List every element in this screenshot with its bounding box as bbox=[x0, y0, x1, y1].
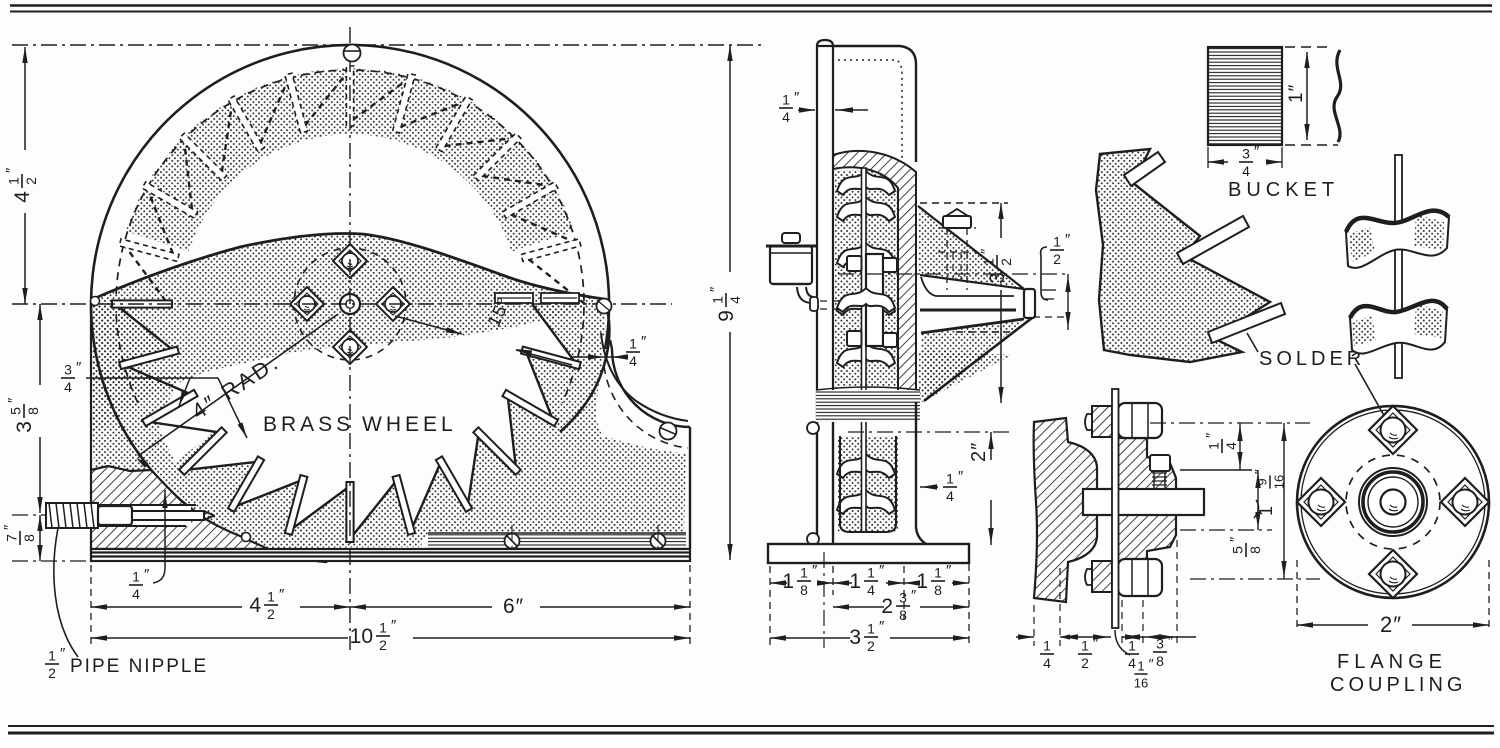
svg-text:″: ″ bbox=[946, 562, 952, 579]
svg-text:1: 1 bbox=[867, 621, 875, 637]
svg-text:″: ″ bbox=[707, 286, 724, 292]
svg-text:1: 1 bbox=[1043, 638, 1051, 654]
svg-text:8: 8 bbox=[25, 407, 41, 415]
svg-text:″: ″ bbox=[978, 248, 995, 254]
svg-text:2″: 2″ bbox=[1380, 612, 1402, 637]
svg-text:WHEEL: WHEEL bbox=[362, 413, 457, 436]
svg-text:″: ″ bbox=[5, 397, 22, 403]
svg-text:8: 8 bbox=[1247, 546, 1263, 554]
svg-text:4: 4 bbox=[727, 296, 743, 304]
svg-text:7: 7 bbox=[4, 534, 20, 542]
svg-text:4: 4 bbox=[782, 109, 790, 125]
svg-text:2: 2 bbox=[23, 177, 39, 185]
svg-text:2: 2 bbox=[881, 595, 893, 618]
svg-text:″: ″ bbox=[1203, 432, 1220, 438]
svg-text:3: 3 bbox=[849, 626, 861, 649]
svg-text:4: 4 bbox=[946, 488, 954, 504]
svg-text:″: ″ bbox=[879, 562, 885, 579]
svg-text:1: 1 bbox=[782, 570, 794, 593]
svg-text:8: 8 bbox=[21, 534, 37, 542]
svg-text:1: 1 bbox=[800, 565, 808, 581]
svg-text:2: 2 bbox=[1053, 251, 1061, 267]
svg-text:1: 1 bbox=[946, 471, 954, 487]
svg-text:BRASS: BRASS bbox=[263, 413, 354, 436]
svg-text:″: ″ bbox=[1093, 635, 1099, 652]
svg-text:1: 1 bbox=[782, 92, 790, 108]
svg-text:″: ″ bbox=[60, 645, 66, 662]
svg-text:SOLDER: SOLDER bbox=[1259, 348, 1365, 370]
svg-text:″: ″ bbox=[1065, 231, 1071, 248]
svg-text:4: 4 bbox=[1128, 655, 1136, 671]
svg-text:4: 4 bbox=[132, 586, 140, 602]
svg-text:″: ″ bbox=[1254, 143, 1260, 160]
svg-text:6″: 6″ bbox=[503, 595, 524, 618]
svg-text:″: ″ bbox=[641, 333, 647, 350]
svg-text:3: 3 bbox=[64, 362, 72, 378]
svg-text:2: 2 bbox=[867, 638, 875, 654]
svg-text:1: 1 bbox=[849, 570, 861, 593]
svg-text:3: 3 bbox=[1156, 636, 1164, 652]
svg-text:″: ″ bbox=[279, 586, 285, 603]
svg-text:1: 1 bbox=[6, 177, 22, 185]
svg-text:4: 4 bbox=[867, 582, 875, 598]
svg-text:″: ″ bbox=[3, 167, 20, 173]
svg-text:4: 4 bbox=[1223, 442, 1239, 450]
svg-text:9: 9 bbox=[1255, 478, 1270, 485]
svg-text:3: 3 bbox=[1242, 146, 1250, 162]
svg-text:8: 8 bbox=[800, 582, 808, 598]
svg-text:1: 1 bbox=[916, 570, 928, 593]
svg-text:1: 1 bbox=[867, 565, 875, 581]
svg-text:″: ″ bbox=[812, 562, 818, 579]
svg-text:8: 8 bbox=[899, 607, 907, 623]
svg-text:1: 1 bbox=[981, 258, 997, 266]
svg-text:1: 1 bbox=[379, 620, 387, 636]
svg-text:4: 4 bbox=[11, 191, 34, 203]
svg-text:4: 4 bbox=[64, 379, 72, 395]
svg-text:4: 4 bbox=[1043, 655, 1051, 671]
svg-text:BUCKET: BUCKET bbox=[1228, 179, 1339, 201]
svg-text:″: ″ bbox=[911, 587, 917, 604]
svg-text:16: 16 bbox=[1134, 675, 1148, 690]
svg-text:4: 4 bbox=[629, 353, 637, 369]
svg-text:2″: 2″ bbox=[968, 442, 990, 462]
svg-text:″: ″ bbox=[144, 566, 150, 583]
svg-text:4: 4 bbox=[249, 594, 261, 617]
svg-text:1: 1 bbox=[267, 589, 275, 605]
svg-text:3: 3 bbox=[13, 421, 36, 433]
svg-text:1: 1 bbox=[1081, 638, 1089, 654]
svg-text:3: 3 bbox=[986, 272, 1009, 284]
svg-text:8: 8 bbox=[934, 582, 942, 598]
svg-text:1: 1 bbox=[132, 569, 140, 585]
svg-text:2: 2 bbox=[998, 258, 1014, 266]
svg-text:9: 9 bbox=[715, 310, 738, 322]
svg-text:5: 5 bbox=[1230, 546, 1246, 554]
svg-text:″: ″ bbox=[1227, 536, 1244, 542]
svg-text:COUPLING: COUPLING bbox=[1330, 674, 1466, 696]
svg-text:3: 3 bbox=[899, 590, 907, 606]
svg-text:8: 8 bbox=[1156, 653, 1164, 669]
svg-text:1: 1 bbox=[710, 296, 726, 304]
svg-text:″: ″ bbox=[958, 468, 964, 485]
svg-text:1: 1 bbox=[1053, 234, 1061, 250]
svg-text:″: ″ bbox=[391, 617, 397, 634]
svg-text:″: ″ bbox=[794, 89, 800, 106]
svg-text:1″: 1″ bbox=[1286, 84, 1307, 103]
svg-text:2: 2 bbox=[379, 637, 387, 653]
svg-text:2: 2 bbox=[1081, 655, 1089, 671]
svg-text:1: 1 bbox=[1128, 638, 1136, 654]
svg-text:″: ″ bbox=[1149, 655, 1154, 671]
svg-text:1: 1 bbox=[629, 336, 637, 352]
svg-text:5: 5 bbox=[8, 407, 24, 415]
svg-text:″: ″ bbox=[1, 524, 18, 530]
svg-text:4: 4 bbox=[1242, 163, 1250, 179]
svg-text:2: 2 bbox=[267, 606, 275, 622]
svg-text:1: 1 bbox=[934, 565, 942, 581]
svg-text:1: 1 bbox=[1206, 442, 1222, 450]
svg-text:″: ″ bbox=[879, 618, 885, 635]
svg-text:FLANGE: FLANGE bbox=[1337, 651, 1447, 673]
svg-text:1: 1 bbox=[48, 648, 56, 664]
svg-text:PIPE NIPPLE: PIPE NIPPLE bbox=[70, 656, 208, 677]
svg-text:″: ″ bbox=[1251, 469, 1267, 474]
svg-text:1: 1 bbox=[1137, 659, 1144, 674]
svg-text:2: 2 bbox=[48, 665, 56, 681]
svg-text:″: ″ bbox=[1168, 633, 1174, 650]
svg-text:10: 10 bbox=[350, 625, 373, 648]
svg-text:″: ″ bbox=[76, 359, 82, 376]
